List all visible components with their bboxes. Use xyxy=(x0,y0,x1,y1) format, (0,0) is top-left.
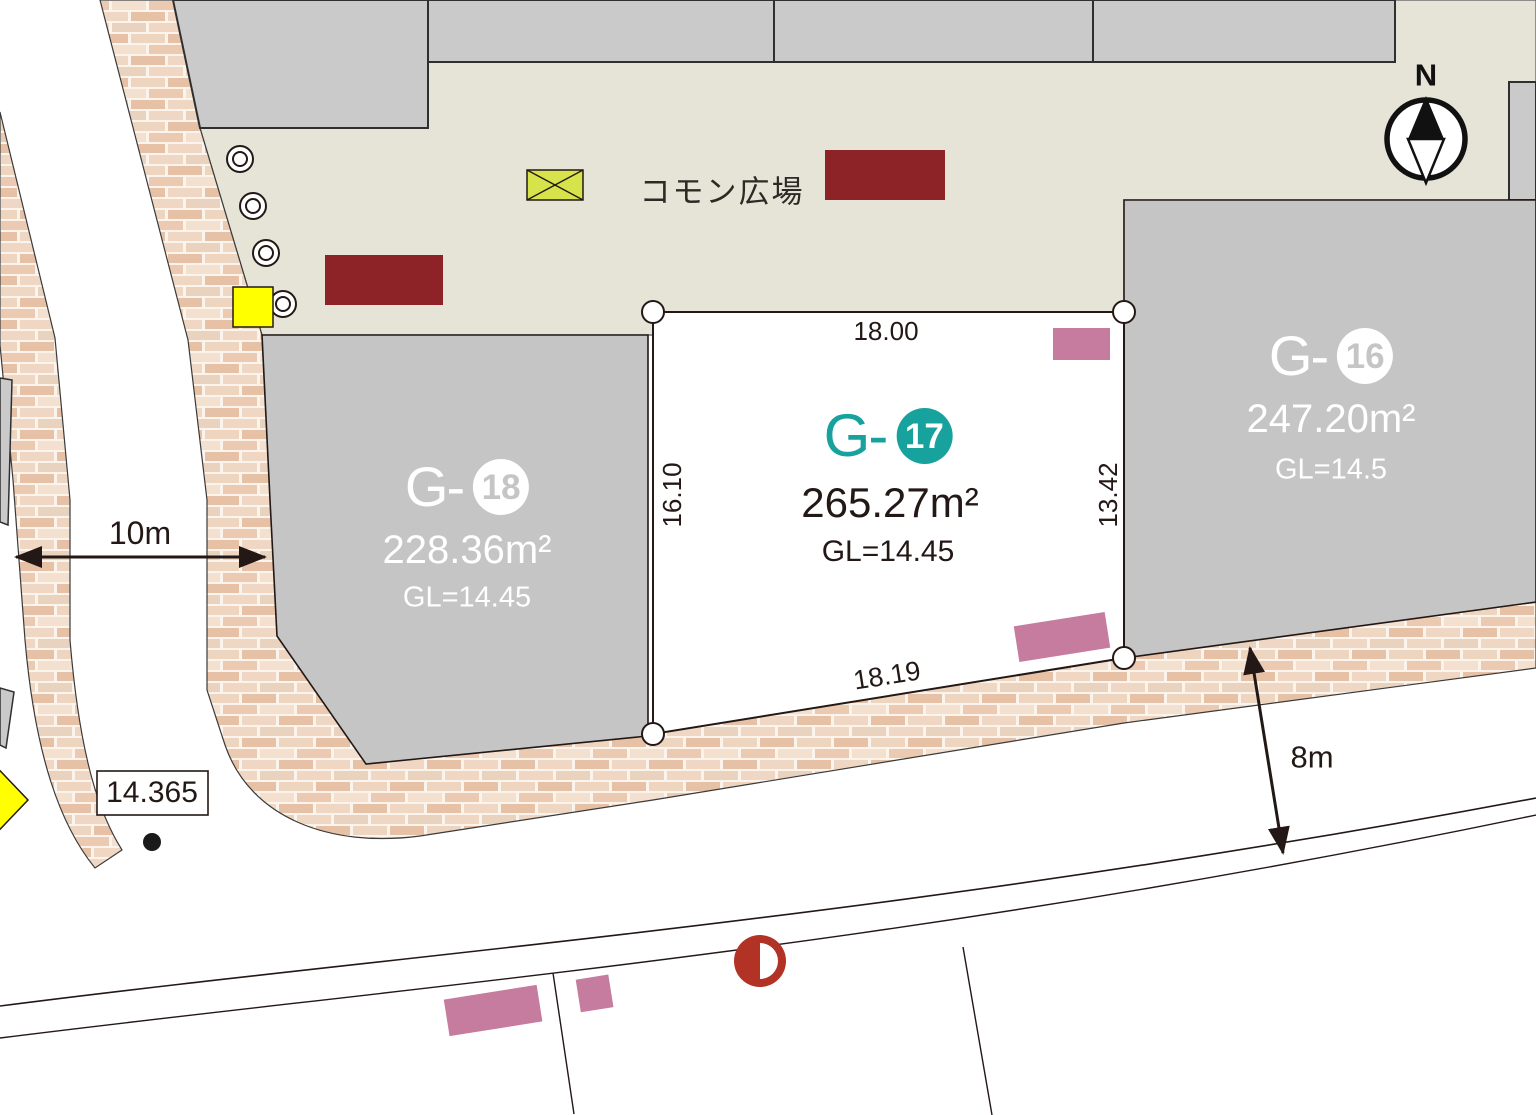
building-west-sliver-2 xyxy=(0,688,14,748)
compass-north-label: N xyxy=(1415,60,1437,91)
parcel-line xyxy=(553,973,574,1114)
site-plan: N コモン広場 G- 17 265.27m² GL=14.45 G- 16 24… xyxy=(0,0,1536,1115)
lot-g18-gl: GL=14.45 xyxy=(403,584,531,613)
lot-g17-prefix: G- xyxy=(824,406,887,466)
lot-g16-prefix: G- xyxy=(1269,328,1327,384)
pergola-icon xyxy=(527,170,583,200)
building-top-right-sliver xyxy=(1509,82,1536,200)
lot-g18-prefix: G- xyxy=(405,459,463,515)
lot-g18-area: 228.36m² xyxy=(383,530,552,570)
corner-marker xyxy=(1113,647,1135,669)
building-top-left xyxy=(173,0,428,128)
site-plan-map xyxy=(0,0,1536,1115)
lot-g17-label[interactable]: G- 17 xyxy=(824,406,953,466)
lot-g17-number-badge: 17 xyxy=(896,408,952,464)
corner-marker xyxy=(642,301,664,323)
dim-south-road: 8m xyxy=(1290,742,1333,773)
lot-g16-gl: GL=14.5 xyxy=(1275,456,1387,485)
brick-path-west-outer xyxy=(0,112,122,868)
parking-rect xyxy=(444,985,543,1036)
benchmark-elevation: 14.365 xyxy=(106,778,198,808)
parking-rect xyxy=(576,975,614,1013)
north-compass-icon xyxy=(1387,96,1465,183)
bench-red xyxy=(325,255,443,305)
benchmark-dot xyxy=(143,833,161,851)
survey-marker-icon xyxy=(734,935,786,987)
building-top-band xyxy=(428,0,1395,62)
corner-marker xyxy=(1113,301,1135,323)
south-road-edge-line-2 xyxy=(0,815,1536,1038)
lot-g17-gl: GL=14.45 xyxy=(822,537,955,567)
lot-g16-number-badge: 16 xyxy=(1337,328,1393,384)
building-west-sliver-1 xyxy=(0,378,12,525)
lot-g18-label[interactable]: G- 18 xyxy=(405,459,529,515)
bench-red xyxy=(825,150,945,200)
dim-lot17-right: 13.42 xyxy=(1095,462,1121,527)
lot-g16-label[interactable]: G- 16 xyxy=(1269,328,1393,384)
tree-icon xyxy=(253,240,279,266)
parking-rect xyxy=(1053,328,1110,360)
lot-g18-number-badge: 18 xyxy=(473,459,529,515)
tree-icon xyxy=(240,193,266,219)
parcel-line xyxy=(963,947,992,1115)
utility-box-yellow xyxy=(233,287,273,327)
tree-icon xyxy=(270,291,296,317)
plaza-label: コモン広場 xyxy=(640,177,805,208)
dim-lot17-left: 16.10 xyxy=(659,462,685,527)
corner-marker xyxy=(642,723,664,745)
tree-icon xyxy=(227,146,253,172)
dim-lot17-top: 18.00 xyxy=(853,318,918,344)
lot-g16-area: 247.20m² xyxy=(1247,399,1416,439)
yellow-diamond-marker xyxy=(0,756,28,844)
lot-g17-area: 265.27m² xyxy=(801,482,978,524)
dim-west-road: 10m xyxy=(109,517,171,549)
